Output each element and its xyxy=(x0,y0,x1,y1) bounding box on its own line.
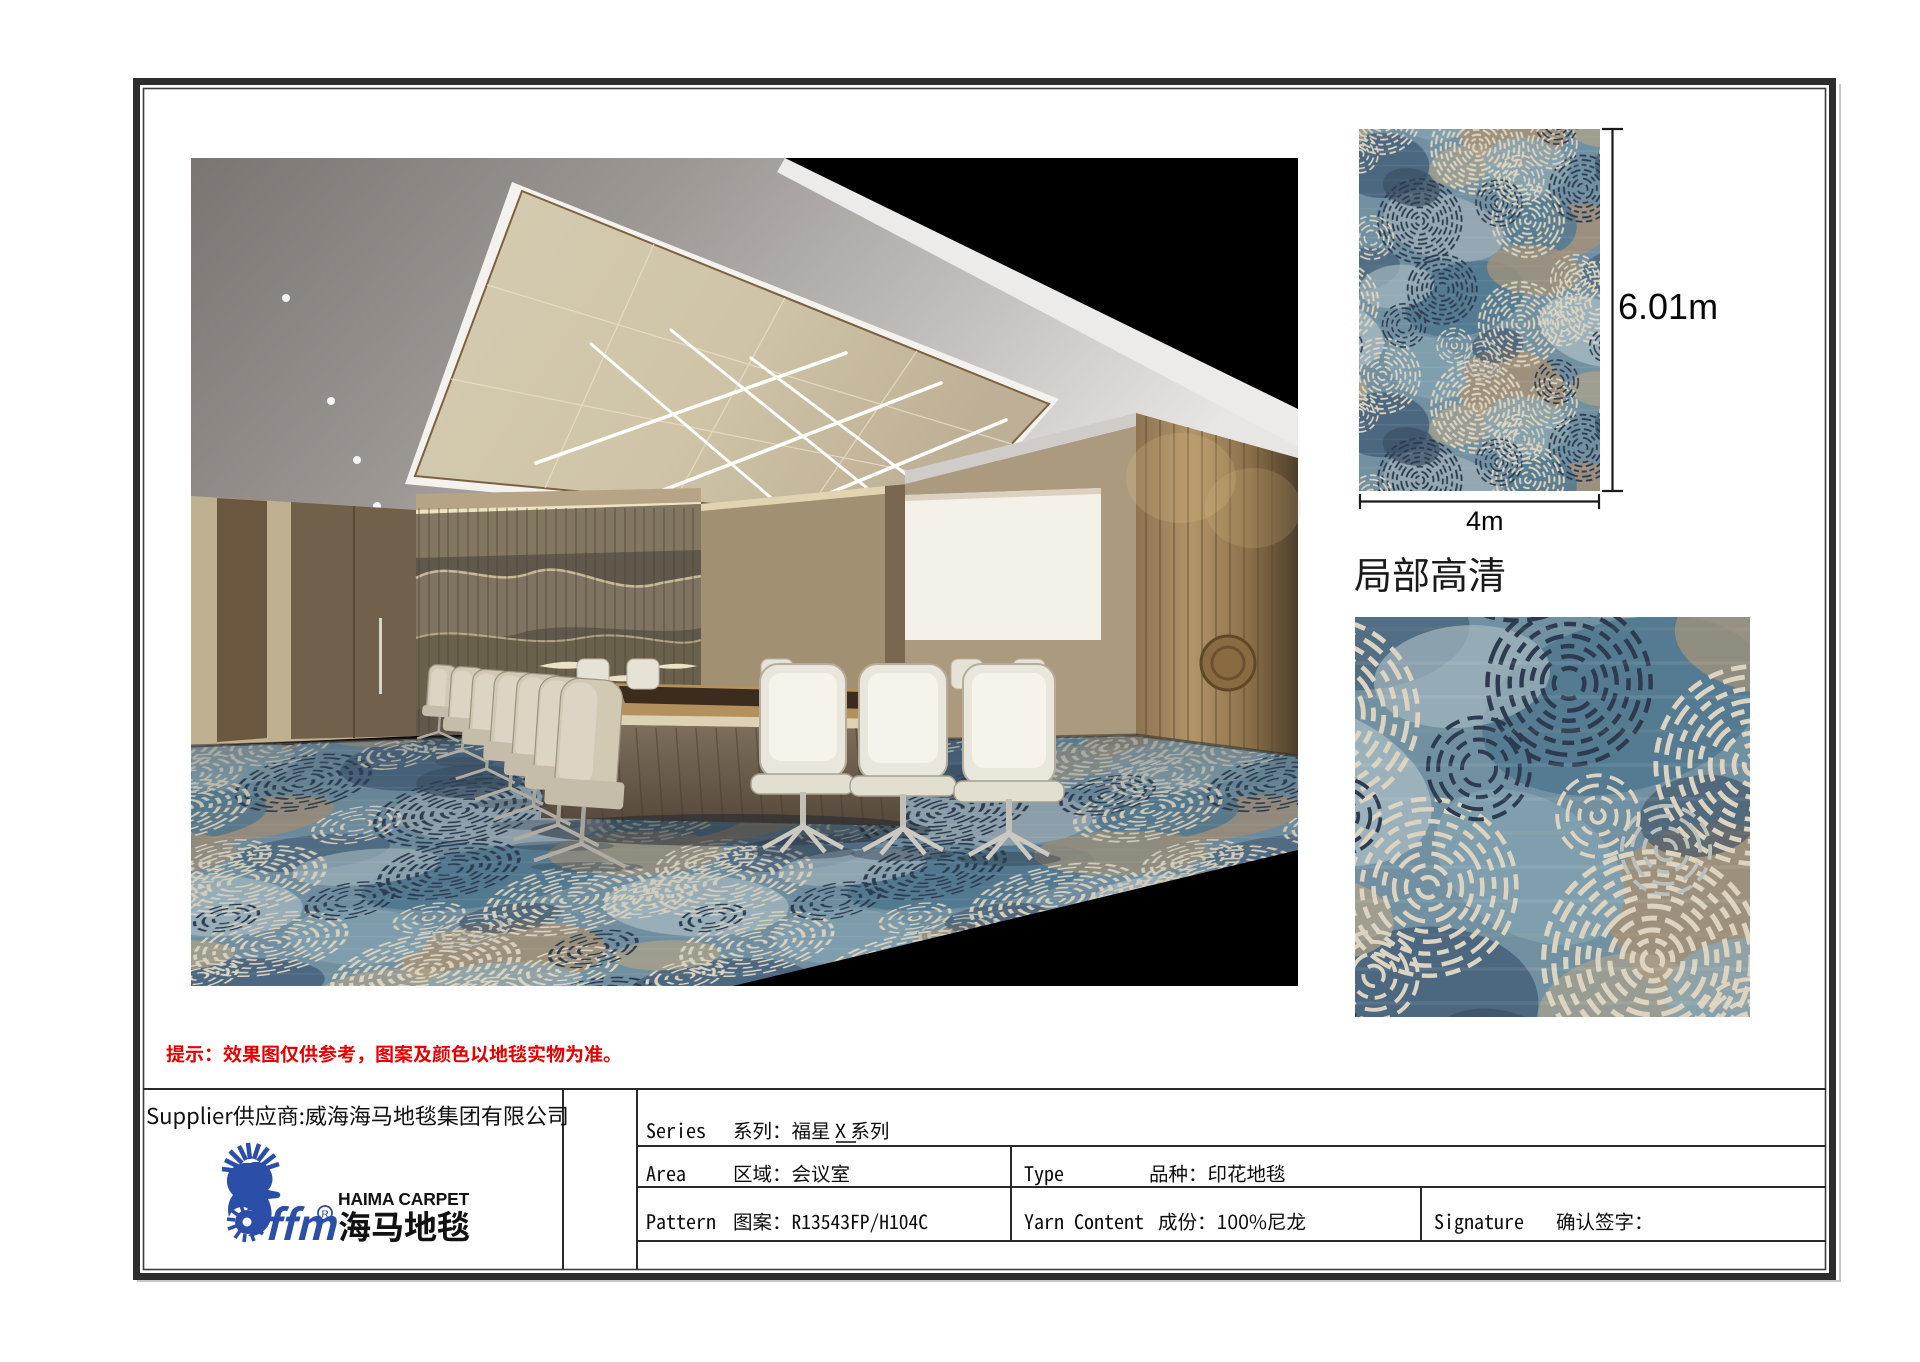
svg-text:HAIMA CARPET: HAIMA CARPET xyxy=(338,1189,470,1209)
svg-text:4m: 4m xyxy=(1466,506,1504,536)
svg-text:6.01m: 6.01m xyxy=(1618,286,1718,327)
svg-text:R: R xyxy=(322,1210,329,1221)
